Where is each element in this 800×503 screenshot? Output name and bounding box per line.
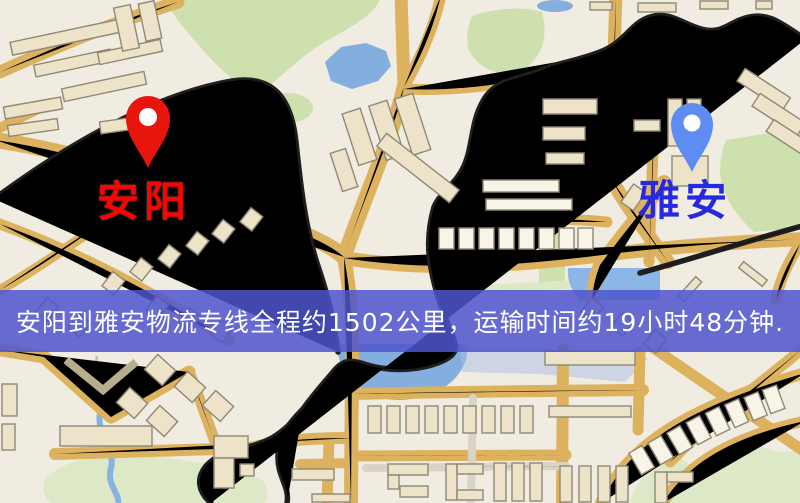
origin-pin-body [126,96,170,168]
base-map [0,0,800,503]
origin-label: 安阳 [97,181,191,223]
destination-pin-body [671,103,713,172]
destination-label: 雅安 [638,180,732,222]
origin-pin-hole [139,108,157,126]
route-info-banner: 安阳到雅安物流专线全程约1502公里，运输时间约19小时48分钟. [0,290,800,352]
route-info-text: 安阳到雅安物流专线全程约1502公里，运输时间约19小时48分钟. [16,303,784,339]
destination-pin[interactable] [666,98,718,174]
map-canvas: 安阳 雅安 安阳到雅安物流专线全程约1502公里，运输时间约19小时48分钟. [0,0,800,503]
destination-pin-hole [684,115,701,132]
origin-pin[interactable] [120,90,176,170]
